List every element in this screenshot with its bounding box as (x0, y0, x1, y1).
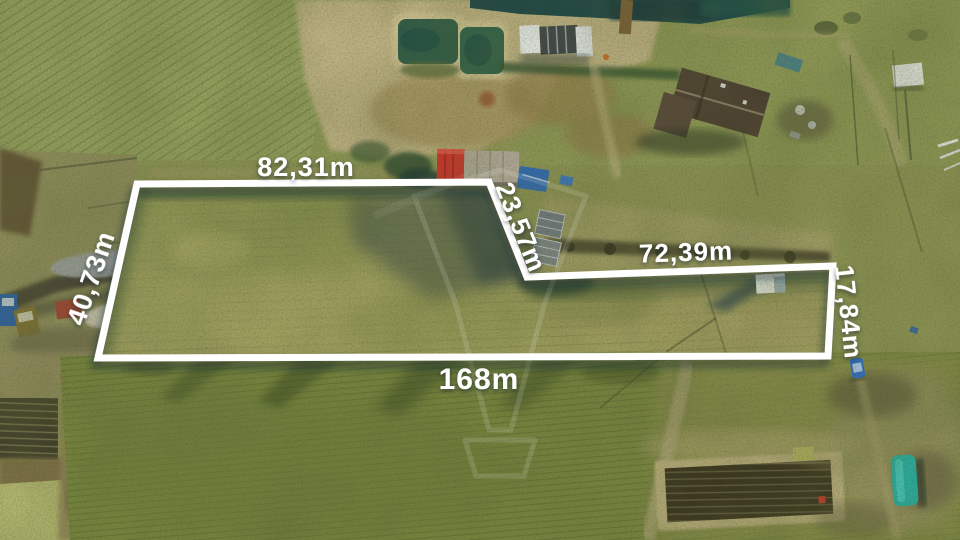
measurement-top-edge: 82,31m (257, 152, 355, 182)
aerial-photo-land-plot: 82,31m 23,57m 72,39m 17,84m 168m 40,73m (0, 0, 960, 540)
measurement-right-section-top: 72,39m (638, 235, 733, 268)
measurement-bottom-edge: 168m (439, 363, 520, 396)
aerial-photo: 82,31m 23,57m 72,39m 17,84m 168m 40,73m (0, 0, 960, 540)
